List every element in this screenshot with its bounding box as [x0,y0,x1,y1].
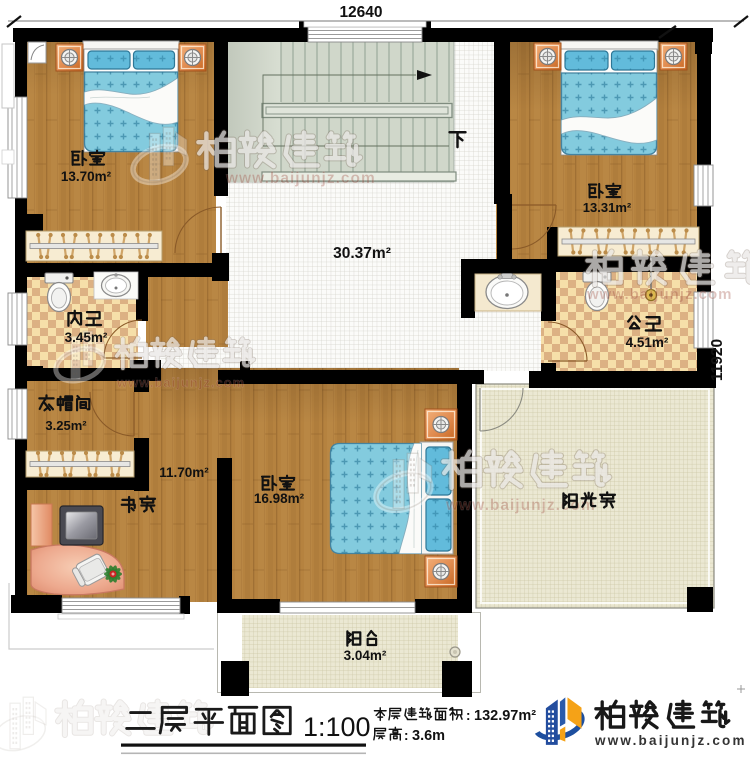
svg-text:12640: 12640 [339,4,382,21]
svg-text:1:100: 1:100 [303,712,371,742]
svg-text:11.70m²: 11.70m² [159,465,209,480]
svg-text:16.98m²: 16.98m² [254,491,305,506]
svg-text:3.6m: 3.6m [412,728,445,744]
svg-text:www.baijunjz.com: www.baijunjz.com [586,286,732,303]
svg-text:13.31m²: 13.31m² [583,200,632,215]
svg-text:3.25m²: 3.25m² [45,418,87,433]
svg-text:30.37m²: 30.37m² [333,245,391,262]
svg-text::: : [466,708,471,723]
svg-text:3.45m²: 3.45m² [65,330,108,345]
svg-text:11920: 11920 [709,339,726,381]
svg-text:132.97m²: 132.97m² [474,708,536,724]
svg-text:www.baijunjz.com: www.baijunjz.com [445,497,596,514]
svg-text:13.70m²: 13.70m² [61,169,112,184]
svg-text::: : [404,728,409,743]
svg-text:3.04m²: 3.04m² [344,648,387,663]
svg-text:www.baijunjz.com: www.baijunjz.com [225,170,376,187]
svg-text:www.baijunjz.com: www.baijunjz.com [594,733,747,748]
svg-text:www.baijunjz.com: www.baijunjz.com [116,375,245,390]
svg-text:4.51m²: 4.51m² [626,335,669,350]
